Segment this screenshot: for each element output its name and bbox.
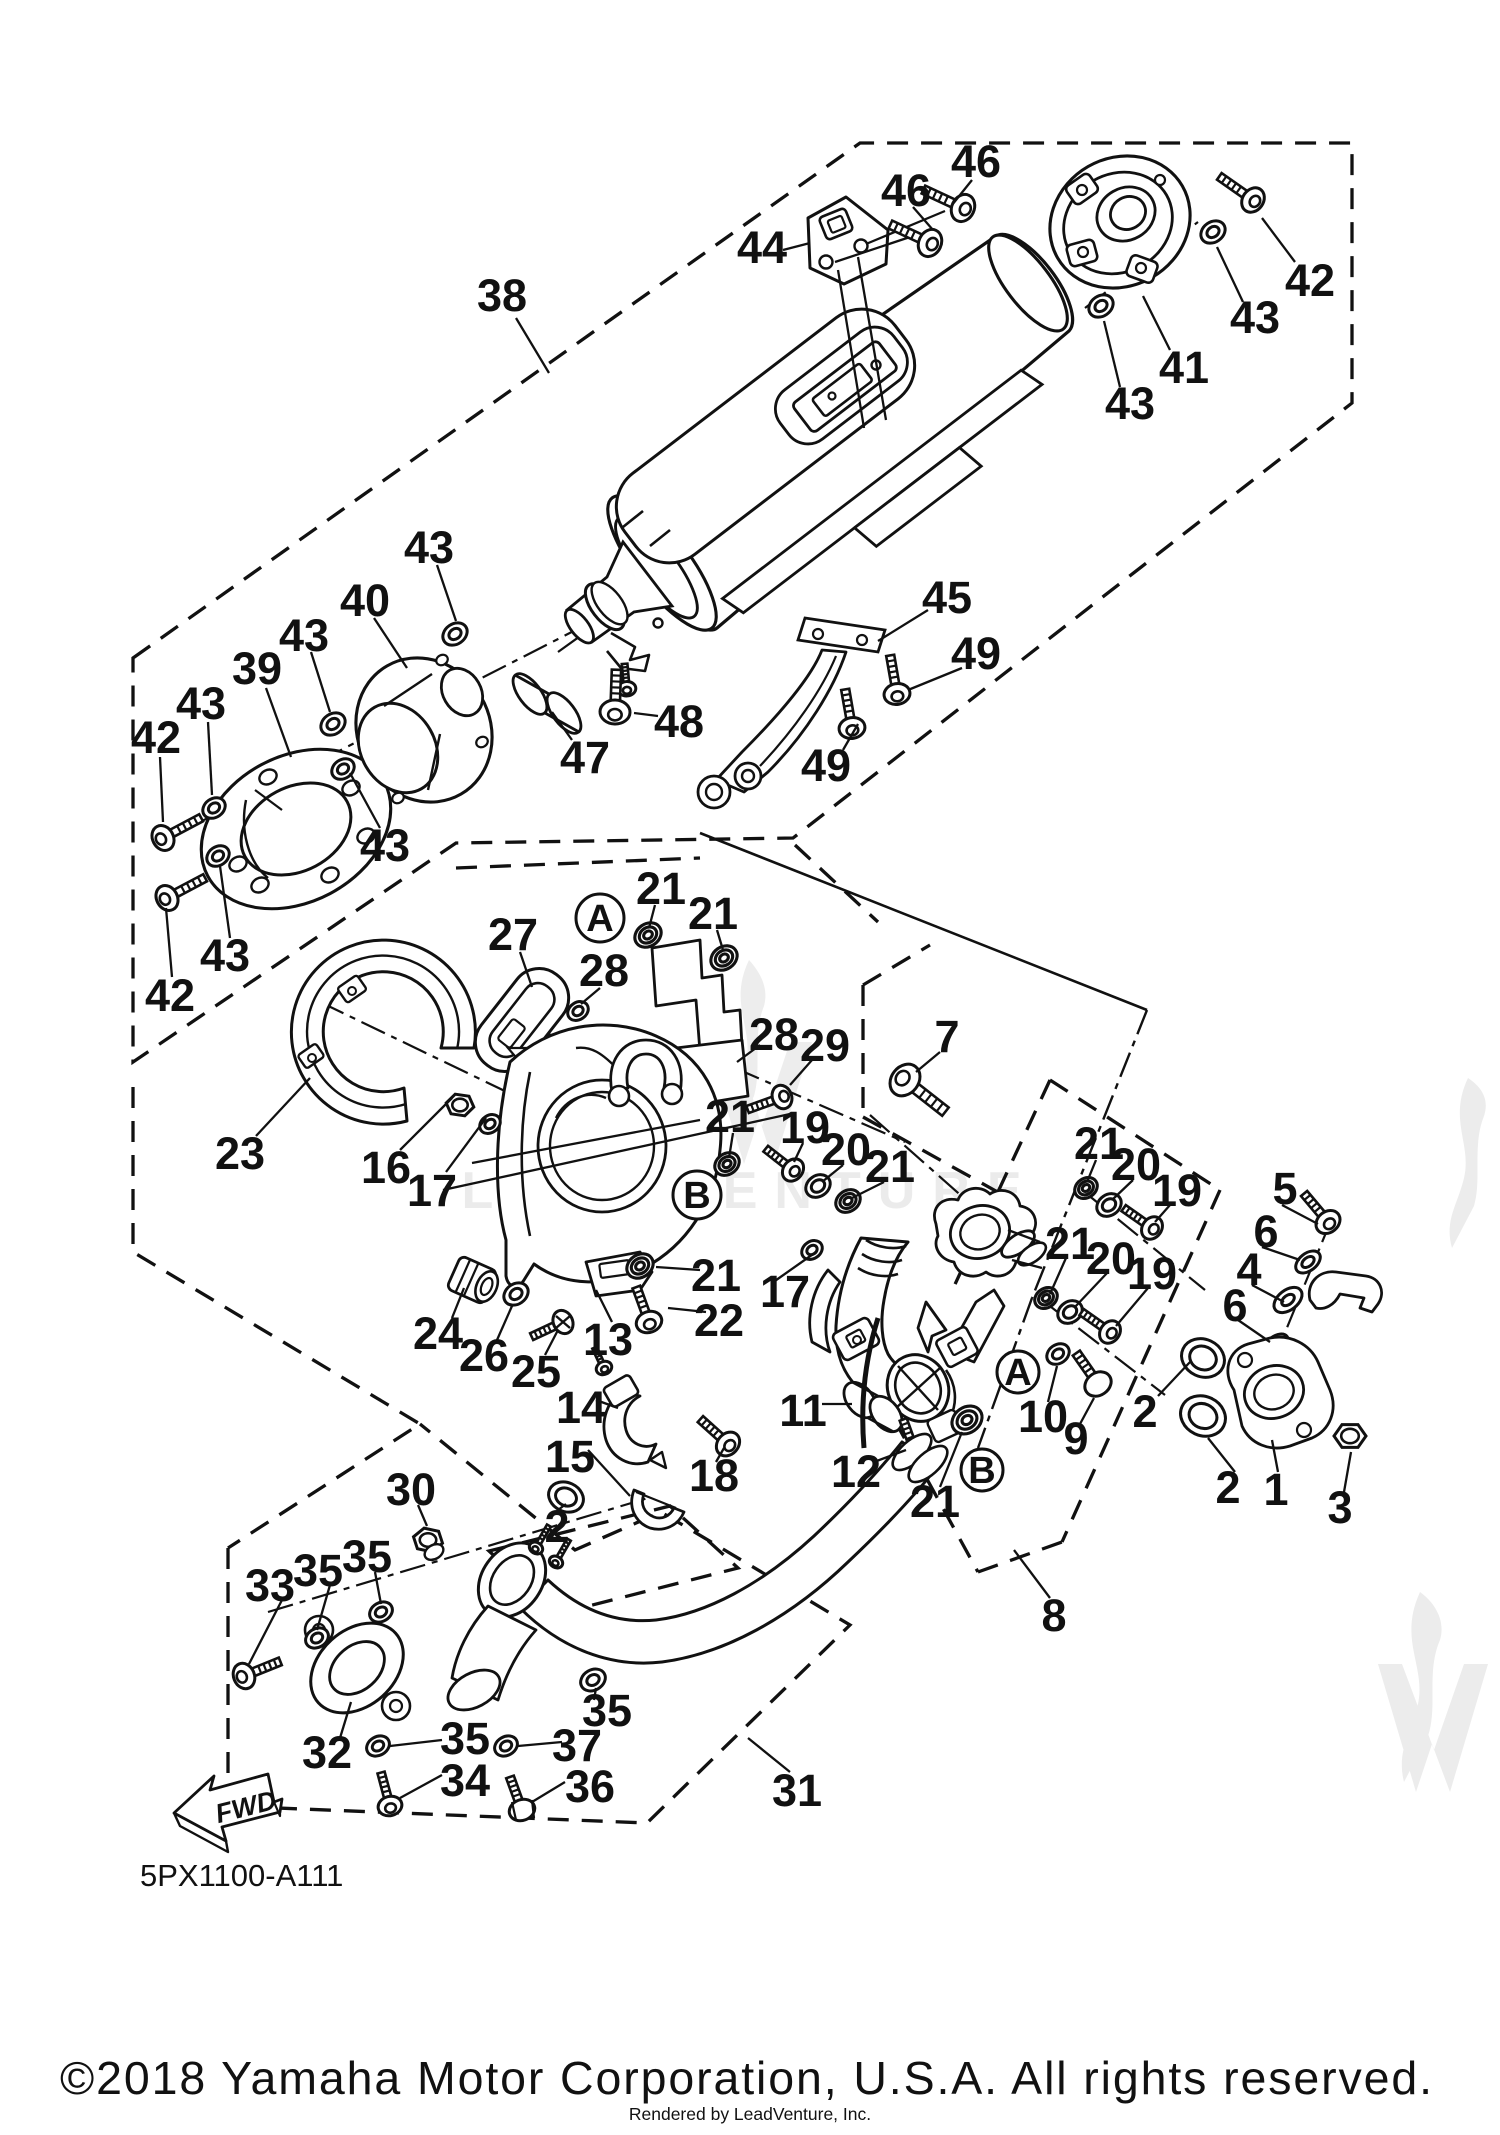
svg-text:43: 43 <box>1105 378 1155 429</box>
svg-text:©2018 Yamaha Motor Corporation: ©2018 Yamaha Motor Corporation, U.S.A. A… <box>60 2052 1432 2104</box>
svg-text:48: 48 <box>654 696 704 747</box>
svg-text:47: 47 <box>560 732 610 783</box>
svg-text:26: 26 <box>459 1330 509 1381</box>
svg-text:9: 9 <box>1063 1413 1088 1464</box>
svg-text:23: 23 <box>215 1128 265 1179</box>
svg-text:43: 43 <box>360 820 410 871</box>
svg-text:17: 17 <box>760 1266 810 1317</box>
svg-text:2: 2 <box>544 1501 569 1552</box>
svg-text:21: 21 <box>636 863 686 914</box>
svg-text:21: 21 <box>691 1250 741 1301</box>
svg-text:21: 21 <box>688 888 738 939</box>
svg-text:43: 43 <box>279 610 329 661</box>
svg-text:40: 40 <box>340 575 390 626</box>
svg-text:33: 33 <box>245 1560 295 1611</box>
svg-text:32: 32 <box>302 1727 352 1778</box>
svg-text:46: 46 <box>951 136 1001 187</box>
svg-text:49: 49 <box>801 740 851 791</box>
svg-text:42: 42 <box>1285 255 1335 306</box>
svg-text:19: 19 <box>1127 1248 1177 1299</box>
svg-text:7: 7 <box>934 1011 959 1062</box>
svg-text:44: 44 <box>737 222 787 273</box>
svg-text:A: A <box>586 898 613 940</box>
svg-text:30: 30 <box>386 1464 436 1515</box>
svg-text:27: 27 <box>488 909 538 960</box>
svg-text:38: 38 <box>477 270 527 321</box>
svg-text:45: 45 <box>922 572 972 623</box>
svg-text:35: 35 <box>342 1531 392 1582</box>
svg-text:25: 25 <box>511 1346 561 1397</box>
svg-text:43: 43 <box>1230 292 1280 343</box>
svg-text:2: 2 <box>1132 1386 1157 1437</box>
svg-text:35: 35 <box>293 1545 343 1596</box>
svg-text:10: 10 <box>1018 1391 1068 1442</box>
svg-text:17: 17 <box>407 1165 457 1216</box>
svg-text:14: 14 <box>556 1382 606 1433</box>
svg-text:B: B <box>683 1175 710 1217</box>
svg-text:21: 21 <box>705 1091 755 1142</box>
svg-text:36: 36 <box>565 1761 615 1812</box>
svg-text:3: 3 <box>1327 1482 1352 1533</box>
svg-text:29: 29 <box>800 1020 850 1071</box>
svg-text:20: 20 <box>821 1124 871 1175</box>
svg-text:22: 22 <box>694 1295 744 1346</box>
svg-text:43: 43 <box>176 678 226 729</box>
svg-text:39: 39 <box>232 643 282 694</box>
svg-text:42: 42 <box>145 970 195 1021</box>
svg-text:5PX1100-A111: 5PX1100-A111 <box>140 1858 343 1893</box>
svg-text:8: 8 <box>1041 1590 1066 1641</box>
svg-text:41: 41 <box>1159 342 1209 393</box>
svg-text:21: 21 <box>865 1141 915 1192</box>
svg-text:13: 13 <box>583 1314 633 1365</box>
svg-text:Rendered by LeadVenture, Inc.: Rendered by LeadVenture, Inc. <box>629 2104 871 2124</box>
svg-text:11: 11 <box>779 1385 827 1436</box>
svg-text:16: 16 <box>361 1142 411 1193</box>
svg-text:18: 18 <box>689 1450 739 1501</box>
svg-text:43: 43 <box>200 930 250 981</box>
svg-text:15: 15 <box>545 1431 595 1482</box>
svg-text:31: 31 <box>772 1765 822 1816</box>
svg-text:6: 6 <box>1222 1280 1247 1331</box>
svg-text:19: 19 <box>1152 1165 1202 1216</box>
svg-text:49: 49 <box>951 628 1001 679</box>
svg-text:2: 2 <box>1215 1462 1240 1513</box>
svg-text:B: B <box>968 1450 995 1492</box>
svg-text:43: 43 <box>404 522 454 573</box>
svg-text:A: A <box>1004 1352 1031 1394</box>
svg-text:28: 28 <box>749 1009 799 1060</box>
svg-text:46: 46 <box>881 165 931 216</box>
svg-text:28: 28 <box>579 945 629 996</box>
svg-text:34: 34 <box>440 1755 490 1806</box>
svg-text:42: 42 <box>131 712 181 763</box>
svg-text:24: 24 <box>413 1308 463 1359</box>
svg-text:12: 12 <box>831 1446 881 1497</box>
svg-text:21: 21 <box>910 1476 960 1527</box>
svg-text:1: 1 <box>1263 1464 1288 1515</box>
